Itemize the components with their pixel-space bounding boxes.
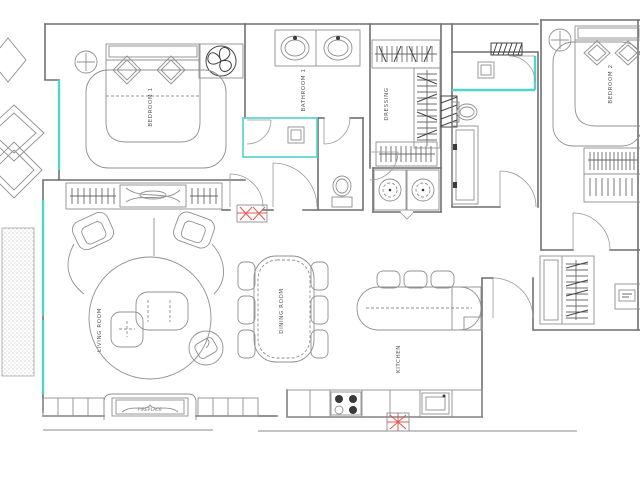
bar-stool (404, 271, 427, 288)
bedroom2-label: BEDROOM 2 (608, 64, 614, 103)
walls (43, 20, 640, 417)
dressing-label: DRESSING (384, 87, 390, 120)
room-dressing: DRESSING (370, 40, 522, 219)
living-door-arc (230, 163, 317, 207)
wc-toilet-icon (332, 176, 352, 207)
floor-plan-canvas: BEDROOM 1 BATHROOM 1 (0, 0, 640, 480)
nightstand-lamp-icon (75, 51, 97, 73)
cooktop-icon (331, 392, 361, 415)
shower2-drain (478, 62, 494, 78)
cabinet-left-icon (43, 398, 104, 416)
living-label: LIVING ROOM (97, 308, 103, 352)
dryer-icon (407, 170, 439, 210)
fireplace-label: FIREPLACE (138, 407, 162, 412)
diamond-ornament (0, 38, 44, 198)
sofa-curve-right (212, 244, 224, 294)
laundry-bifold-door (400, 212, 414, 219)
closet-bottom-band (376, 142, 437, 166)
sofa-curve-left (68, 244, 84, 294)
washer-icon (374, 170, 406, 210)
radiator-corridor-icon (237, 205, 267, 222)
exterior-decor (0, 38, 577, 431)
closet-right-band (414, 68, 440, 148)
bathroom1-label: BATHROOM 1 (301, 68, 307, 111)
room-bedroom-1: BEDROOM 1 (66, 44, 243, 209)
kitchen-counter-icon (287, 390, 482, 417)
bedroom2-rug (553, 42, 640, 146)
bar-stool (431, 271, 454, 288)
kitchen-cabinet-icon (464, 317, 482, 330)
bedroom2-door (573, 213, 610, 250)
wc-door (324, 118, 350, 144)
dining-chair (238, 262, 255, 290)
fireplace-icon: FIREPLACE (104, 394, 196, 420)
desk-icon (615, 284, 640, 309)
floor-plan-screenshot: BEDROOM 1 BATHROOM 1 (0, 0, 640, 480)
room-bathroom-1: BATHROOM 1 (243, 30, 360, 207)
ceiling-fan-icon (199, 44, 243, 78)
radiators (237, 205, 409, 431)
armchair-right-icon (171, 209, 217, 250)
closet-top-band (372, 40, 440, 68)
coffee-table-icon (136, 292, 188, 330)
kitchen-door (493, 278, 533, 318)
hall-wardrobe-icon (540, 256, 594, 324)
shower2-drain-inner (481, 65, 491, 75)
dining-chair (238, 330, 255, 358)
dining-chair (238, 296, 255, 324)
cabinet-right-icon (198, 398, 258, 416)
terrace-edge-lines (43, 430, 577, 431)
room-bathroom-2 (452, 56, 536, 207)
double-sink-vanity-icon (275, 30, 360, 66)
shower2-door (509, 56, 535, 82)
planter-stipple (2, 228, 34, 376)
room-bedroom-2: BEDROOM 2 (549, 26, 640, 250)
bedroom2-closet-icon (584, 148, 640, 202)
nightstand-lamp2-icon (549, 29, 571, 51)
armchair-left-icon (69, 209, 116, 252)
kitchen-island-icon (357, 287, 481, 330)
vent-shaft-hatch (491, 43, 522, 55)
bar-stool (377, 271, 400, 288)
bedroom1-wardrobe-icon (66, 183, 222, 209)
windows (43, 80, 59, 394)
bedroom1-label: BEDROOM 1 (148, 87, 154, 126)
hall-area (540, 256, 640, 324)
room-kitchen: KITCHEN (287, 271, 533, 417)
bar-stools (377, 271, 454, 288)
kitchen-sink-icon (422, 393, 449, 414)
room-dining: DINING ROOM (238, 256, 328, 362)
bedroom1-rug (86, 70, 226, 168)
vanity-counter-icon (452, 126, 478, 204)
round-rug (89, 257, 211, 379)
kitchen-label: KITCHEN (396, 345, 402, 373)
shower-enclosure-icon (243, 118, 317, 157)
swivel-chair-icon (189, 331, 223, 365)
shower2-glass (452, 56, 535, 90)
radiator-kitchen-icon (387, 413, 409, 431)
bathroom2-door (500, 171, 536, 207)
side-table-icon (111, 312, 143, 347)
dining-label: DINING ROOM (279, 288, 285, 334)
